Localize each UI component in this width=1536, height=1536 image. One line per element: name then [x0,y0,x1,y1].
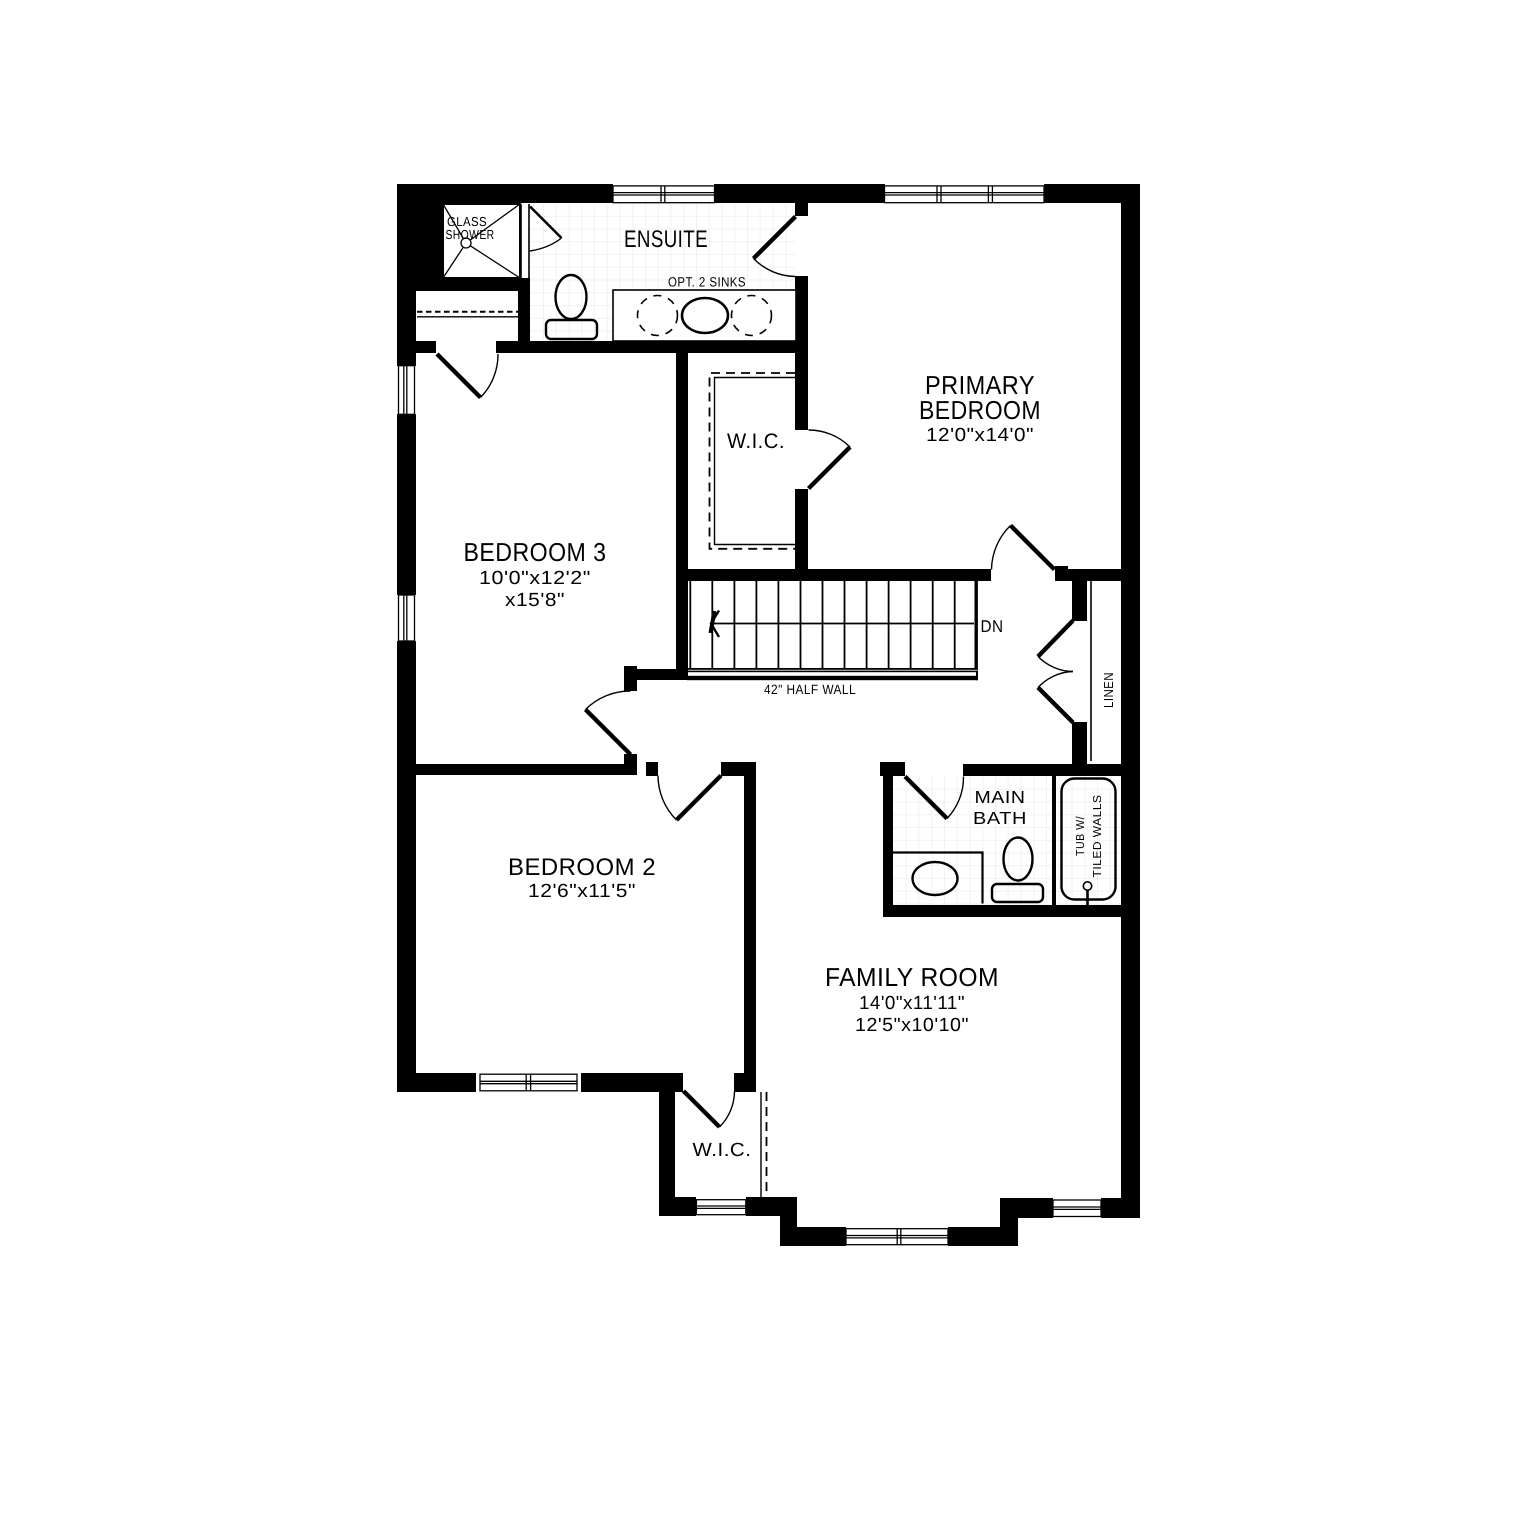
svg-text:SHOWER: SHOWER [446,227,495,242]
svg-text:TILED WALLS: TILED WALLS [1092,795,1104,878]
svg-text:12'5"x10'10": 12'5"x10'10" [855,1015,969,1036]
svg-text:MAIN: MAIN [975,787,1026,807]
svg-text:BATH: BATH [973,808,1027,828]
svg-text:BEDROOM 2: BEDROOM 2 [508,854,656,881]
svg-text:BEDROOM: BEDROOM [919,395,1041,425]
svg-text:12'0"x14'0": 12'0"x14'0" [926,425,1034,446]
svg-text:BEDROOM 3: BEDROOM 3 [464,537,607,567]
svg-text:TUB W/: TUB W/ [1075,816,1087,856]
svg-text:FAMILY ROOM: FAMILY ROOM [825,962,999,992]
svg-text:OPT. 2 SINKS: OPT. 2 SINKS [668,275,746,290]
svg-text:ENSUITE: ENSUITE [624,226,708,253]
svg-text:DN: DN [981,617,1004,636]
svg-text:x15'8": x15'8" [505,590,565,611]
svg-text:W.I.C.: W.I.C. [693,1140,752,1161]
svg-text:12'6"x11'5": 12'6"x11'5" [528,881,636,902]
svg-text:10'0"x12'2": 10'0"x12'2" [479,568,591,589]
svg-text:14'0"x11'11": 14'0"x11'11" [859,993,965,1014]
svg-text:LINEN: LINEN [1101,672,1116,708]
svg-text:42" HALF WALL: 42" HALF WALL [764,682,856,697]
svg-text:W.I.C.: W.I.C. [727,430,785,453]
